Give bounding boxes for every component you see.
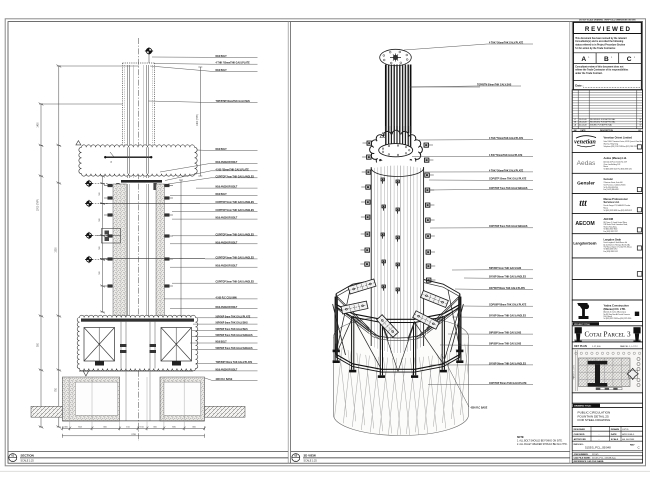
svg-text:W: W bbox=[640, 119, 642, 121]
svg-text:M16 ANCHOR BOLT: M16 ANCHOR BOLT bbox=[216, 306, 238, 309]
svg-text:COP/TOP 5mm THK GALV.ANGLES: COP/TOP 5mm THK GALV.ANGLES bbox=[216, 281, 255, 284]
svg-text:Aedas: Aedas bbox=[577, 160, 596, 167]
svg-text:venetian: venetian bbox=[574, 139, 596, 146]
svg-text:4 500 R.C COLUMN: 4 500 R.C COLUMN bbox=[216, 296, 237, 299]
svg-text:NOTE:: NOTE: bbox=[517, 437, 524, 439]
svg-text:COP/TOP 50mm THK GALV.PLATE: COP/TOP 50mm THK GALV.PLATE bbox=[489, 382, 527, 385]
svg-text:C: C bbox=[627, 56, 632, 63]
svg-text:TOP/50P 50mm THK GALV.PLATE: TOP/50P 50mm THK GALV.PLATE bbox=[216, 361, 253, 364]
svg-text:50P/50P 5mm THK GALV.ANGLES: 50P/50P 5mm THK GALV.ANGLES bbox=[216, 347, 253, 350]
svg-text:1400 (TYP): 1400 (TYP) bbox=[197, 114, 199, 126]
svg-text:02-04-08: 02-04-08 bbox=[579, 124, 587, 126]
svg-text:Macau: Macau bbox=[604, 207, 609, 209]
svg-text:PARCEL 1, LOT 2: PARCEL 1, LOT 2 bbox=[620, 345, 638, 348]
svg-text:Venetian Orient Limited: Venetian Orient Limited bbox=[604, 136, 633, 140]
svg-text:Tel (853) 2833 1022 Fax (853): Tel (853) 2833 1022 Fax (853) 2833 1211 bbox=[604, 169, 633, 171]
svg-text:50P/50P 5mm THK GALV.SHS: 50P/50P 5mm THK GALV.SHS bbox=[489, 267, 522, 270]
svg-text:M16 BOLT: M16 BOLT bbox=[216, 149, 228, 151]
svg-text:FOR STEEL DRAWING: FOR STEEL DRAWING bbox=[578, 418, 611, 422]
svg-text:5.4 for action by the Trade Co: 5.4 for action by the Trade Contractor. bbox=[575, 47, 616, 50]
svg-text:LangdonSeah: LangdonSeah bbox=[573, 242, 596, 246]
svg-text:Wanchai, Hong Kong: Wanchai, Hong Kong bbox=[604, 144, 619, 146]
svg-text:APPROVED: APPROVED bbox=[574, 438, 587, 441]
svg-text:0 5 10 25m: 0 5 10 25m bbox=[598, 386, 607, 388]
svg-text:2. ALL FILLET WELDED SHOULD BE: 2. ALL FILLET WELDED SHOULD BE 6mm THK. bbox=[517, 443, 568, 446]
svg-text:Fax (852) 3922 9797: Fax (852) 3922 9797 bbox=[604, 231, 619, 233]
svg-text:50P/50P 5mm THK GALV.SHS: 50P/50P 5mm THK GALV.SHS bbox=[489, 332, 522, 335]
svg-text:COP/TOP 7mm THK GALV.ANGLES: COP/TOP 7mm THK GALV.ANGLES bbox=[489, 187, 528, 190]
svg-text:Telephone (852) 2118 2748 Fax: Telephone (852) 2118 2748 Fax (852) 2118… bbox=[604, 146, 638, 148]
svg-text:CHECKED: CHECKED bbox=[574, 434, 585, 436]
svg-text:18-K, Macau: 18-K, Macau bbox=[604, 316, 613, 318]
svg-text:4 THK *50mmTHK GALV.PLATE: 4 THK *50mmTHK GALV.PLATE bbox=[489, 137, 524, 140]
svg-text:Yadea Construction: Yadea Construction bbox=[604, 303, 630, 307]
svg-text:M16 BOLT: M16 BOLT bbox=[216, 56, 228, 58]
svg-text:APR 2008-5: APR 2008-5 bbox=[622, 433, 635, 436]
svg-text:(Macau) CO. LTD.: (Macau) CO. LTD. bbox=[604, 307, 626, 311]
svg-text:4200 R.C BASE: 4200 R.C BASE bbox=[471, 407, 488, 410]
svg-text:Consultants(s) and is accorded: Consultants(s) and is accorded the follo… bbox=[575, 40, 624, 43]
svg-text:Tel (853) 2878 6281 Fax (853): Tel (853) 2878 6281 Fax (853) 2878 6122 bbox=[604, 210, 633, 212]
svg-text:4 500 *50mmTHK GALV.PLATE: 4 500 *50mmTHK GALV.PLATE bbox=[216, 168, 250, 171]
svg-text:Gensler: Gensler bbox=[577, 180, 595, 186]
svg-text:M16 ANCHOR BOLT: M16 ANCHOR BOLT bbox=[216, 161, 238, 164]
svg-text:DO NOT SCALE DRAWING. VERIFY A: DO NOT SCALE DRAWING. VERIFY ALL DIMENSI… bbox=[579, 19, 636, 22]
svg-text:SCALE: SCALE bbox=[611, 438, 619, 441]
svg-text:Gensler: Gensler bbox=[604, 177, 614, 181]
svg-text:4 THK *50mmTHK GALV.PLATE: 4 THK *50mmTHK GALV.PLATE bbox=[489, 41, 524, 44]
svg-text:50*50P 50mm THK GALV.ANGLES: 50*50P 50mm THK GALV.ANGLES bbox=[489, 362, 526, 365]
svg-text:Services Ltd.: Services Ltd. bbox=[604, 200, 620, 204]
svg-text:COP/TOP 5mm THK GALV.ANGLES: COP/TOP 5mm THK GALV.ANGLES bbox=[216, 256, 255, 259]
svg-text:50P/50P 5mm THK GALV.ANGLES: 50P/50P 5mm THK GALV.ANGLES bbox=[216, 334, 253, 337]
svg-text:DRAWING TITLE:: DRAWING TITLE: bbox=[574, 405, 591, 408]
svg-text:RE-ISSUED FOR APPROVAL: RE-ISSUED FOR APPROVAL bbox=[590, 118, 615, 121]
svg-text:COTAI PARCEL 3: COTAI PARCEL 3 bbox=[584, 331, 631, 339]
svg-text:Aedas (Macau) Ltd.: Aedas (Macau) Ltd. bbox=[604, 156, 628, 160]
svg-text:M16 BOLT: M16 BOLT bbox=[216, 70, 228, 72]
svg-text:1:17,500: 1:17,500 bbox=[592, 346, 601, 348]
svg-text:Fax (853) 2833 1532: Fax (853) 2833 1532 bbox=[604, 251, 619, 253]
svg-text:4 THK *50mmTHK GALV.PLATE: 4 THK *50mmTHK GALV.PLATE bbox=[216, 62, 251, 65]
svg-text:A: A bbox=[581, 56, 586, 63]
svg-text:SCALE 1:25: SCALE 1:25 bbox=[21, 459, 35, 462]
svg-text:COP/TOP 5mm THK GALV.ANGLES: COP/TOP 5mm THK GALV.ANGLES bbox=[216, 201, 255, 204]
svg-text:50*50P 50mm THK GALV.ANGLES: 50*50P 50mm THK GALV.ANGLES bbox=[489, 276, 526, 279]
svg-text:PARCEL 1, LOT 1: PARCEL 1, LOT 1 bbox=[572, 365, 575, 379]
svg-text:3D VIEW: 3D VIEW bbox=[304, 454, 317, 458]
svg-text:Date :: Date : bbox=[575, 84, 583, 88]
svg-text:1400: 1400 bbox=[38, 122, 40, 128]
svg-text:AS SHOWN: AS SHOWN bbox=[622, 438, 634, 441]
svg-text:5153/5_PCL_05/048: 5153/5_PCL_05/048 bbox=[585, 446, 611, 450]
svg-text:LWYD: LWYD bbox=[622, 429, 629, 431]
svg-text:status referred to in Projec: status referred to in Project Procedure … bbox=[575, 44, 626, 47]
svg-text:M16 ANCHOR BOLT: M16 ANCHOR BOLT bbox=[216, 186, 238, 189]
svg-text:1500: 1500 bbox=[55, 247, 57, 253]
svg-text:W: W bbox=[640, 124, 642, 126]
svg-text:M16 ANCHOR BOLT: M16 ANCHOR BOLT bbox=[216, 217, 238, 220]
svg-text:50*50P 50mm THK GALV.ANGLES: 50*50P 50mm THK GALV.ANGLES bbox=[489, 315, 526, 318]
svg-text:Tel (853) 2875 2268 Fax (853): Tel (853) 2875 2268 Fax (853) 2875 2269 bbox=[604, 318, 632, 320]
svg-text:AECOM: AECOM bbox=[604, 217, 613, 221]
svg-text:M16 ANCHOR BOLT: M16 ANCHOR BOLT bbox=[216, 368, 238, 371]
svg-text:M16 BOLT: M16 BOLT bbox=[216, 194, 228, 196]
svg-text:RE-ISSUED FOR APPROVAL: RE-ISSUED FOR APPROVAL bbox=[590, 121, 615, 124]
svg-text:REV: REV bbox=[630, 445, 635, 447]
svg-text:1. ALL BOLT SHOULD BE FIXING O: 1. ALL BOLT SHOULD BE FIXING ON SITE. bbox=[517, 440, 563, 443]
svg-text:under the Trade Contract.: under the Trade Contract. bbox=[575, 72, 603, 75]
svg-text:2700 (TYP): 2700 (TYP) bbox=[38, 199, 40, 211]
svg-text:TOP/BTM 50mmTHK GALV.SHS: TOP/BTM 50mmTHK GALV.SHS bbox=[477, 83, 512, 86]
svg-text:M16 ANCHOR BOLT: M16 ANCHOR BOLT bbox=[216, 241, 238, 244]
svg-text:AECOM: AECOM bbox=[575, 221, 594, 227]
svg-text:COP/STP 50mm THK GALV.PLATE: COP/STP 50mm THK GALV.PLATE bbox=[489, 178, 527, 181]
svg-text:ISSUED FOR APPROVAL: ISSUED FOR APPROVAL bbox=[590, 123, 612, 126]
svg-text:TOP/BTM 50mmTHK GALV.SHS: TOP/BTM 50mmTHK GALV.SHS bbox=[216, 100, 251, 103]
svg-text:DRAWN: DRAWN bbox=[611, 428, 620, 431]
svg-text:SCALE 1:25: SCALE 1:25 bbox=[304, 459, 318, 462]
svg-text:M16 ANCHOR BOLT: M16 ANCHOR BOLT bbox=[216, 265, 238, 268]
svg-text:50P/50P 5mm THK GALV.PLATE: 50P/50P 5mm THK GALV.PLATE bbox=[216, 315, 251, 318]
svg-text:DWG NO:: DWG NO: bbox=[574, 444, 584, 446]
svg-text:4 500 *50mmTHK GALV.PLATE: 4 500 *50mmTHK GALV.PLATE bbox=[489, 154, 523, 157]
svg-text:relieve the Trade Contracto: relieve the Trade Contractor of its resp… bbox=[575, 69, 629, 72]
svg-text:REFERENCE CAD FILE NAME:: REFERENCE CAD FILE NAME: bbox=[574, 460, 605, 463]
svg-text:COP/TOP 5mm THK GALV.ANGLES: COP/TOP 5mm THK GALV.ANGLES bbox=[216, 233, 255, 236]
svg-text:Consultant review of this docu: Consultant review of this document does … bbox=[575, 65, 623, 68]
svg-text:This document has been revised: This document has been revised by the re… bbox=[575, 37, 627, 40]
svg-text:COP/TOP 5mm THK GALV.ANGLES: COP/TOP 5mm THK GALV.ANGLES bbox=[489, 225, 528, 228]
svg-text:Tel (852) 3922 9000: Tel (852) 3922 9000 bbox=[604, 229, 618, 231]
svg-text:COP/TOP 7mm THK GALV.ANGLES: COP/TOP 7mm THK GALV.ANGLES bbox=[216, 175, 255, 178]
svg-text:50P/50P 5mm THK GALV.SHS: 50P/50P 5mm THK GALV.SHS bbox=[489, 343, 522, 346]
svg-text:4 THK *50mmTHK GALV.PLATE: 4 THK *50mmTHK GALV.PLATE bbox=[489, 169, 524, 172]
svg-text:COP/TOP 5mm THK GALV.ANGLES: COP/TOP 5mm THK GALV.ANGLES bbox=[216, 209, 255, 212]
svg-text:Fax (1-415) 836-4599: Fax (1-415) 836-4599 bbox=[604, 189, 619, 191]
svg-text:DESIGNED: DESIGNED bbox=[574, 429, 586, 431]
svg-text:B: B bbox=[604, 56, 609, 63]
svg-text:China Law Building 21/F: China Law Building 21/F bbox=[604, 164, 621, 166]
svg-text:KEY PLAN: KEY PLAN bbox=[574, 345, 587, 348]
svg-text:50P/50P 5mm THK GALV.SHS: 50P/50P 5mm THK GALV.SHS bbox=[216, 322, 249, 325]
svg-text:SECTION: SECTION bbox=[21, 454, 34, 458]
svg-text:Tel (853) 2833 1710: Tel (853) 2833 1710 bbox=[604, 249, 618, 251]
svg-text:50P/50P 5mm THK GALV.SHS: 50P/50P 5mm THK GALV.SHS bbox=[216, 328, 249, 331]
svg-text:400*500*50mm THK GALV.PLATE: 400*500*50mm THK GALV.PLATE bbox=[489, 287, 526, 290]
svg-text:29-05-08: 29-05-08 bbox=[579, 119, 587, 121]
svg-text:Macau: Macau bbox=[604, 166, 609, 168]
svg-text:COP/50P*50mm THK GALV.PLATE: COP/50P*50mm THK GALV.PLATE bbox=[489, 304, 527, 307]
svg-text:Langdon Seah: Langdon Seah bbox=[604, 237, 622, 241]
svg-text:4200 R.C BASE: 4200 R.C BASE bbox=[216, 378, 233, 381]
svg-text:DATE: DATE bbox=[611, 433, 617, 436]
svg-text:ttt: ttt bbox=[579, 198, 587, 208]
svg-text:M16 BOLT: M16 BOLT bbox=[216, 342, 228, 344]
svg-text:R E V I E W E D: R E V I E W E D bbox=[585, 26, 631, 33]
svg-text:Tel (1-415) 433-3700: Tel (1-415) 433-3700 bbox=[604, 187, 619, 189]
